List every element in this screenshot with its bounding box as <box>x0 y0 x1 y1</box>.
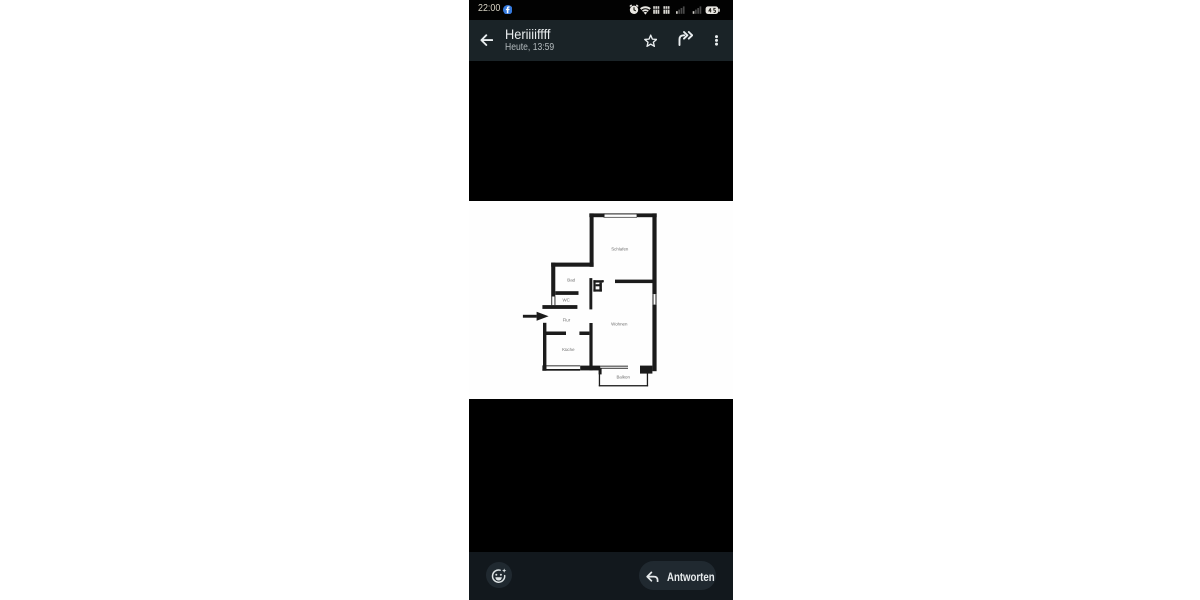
svg-text:Flur: Flur <box>563 318 571 323</box>
svg-text:Bad: Bad <box>567 277 575 282</box>
svg-text:Küche: Küche <box>562 347 575 352</box>
svg-text:Wohnen: Wohnen <box>611 321 628 326</box>
svg-text:Balkon: Balkon <box>616 375 630 380</box>
svg-text:Schlafen: Schlafen <box>611 247 629 252</box>
svg-text:WC: WC <box>563 297 570 302</box>
